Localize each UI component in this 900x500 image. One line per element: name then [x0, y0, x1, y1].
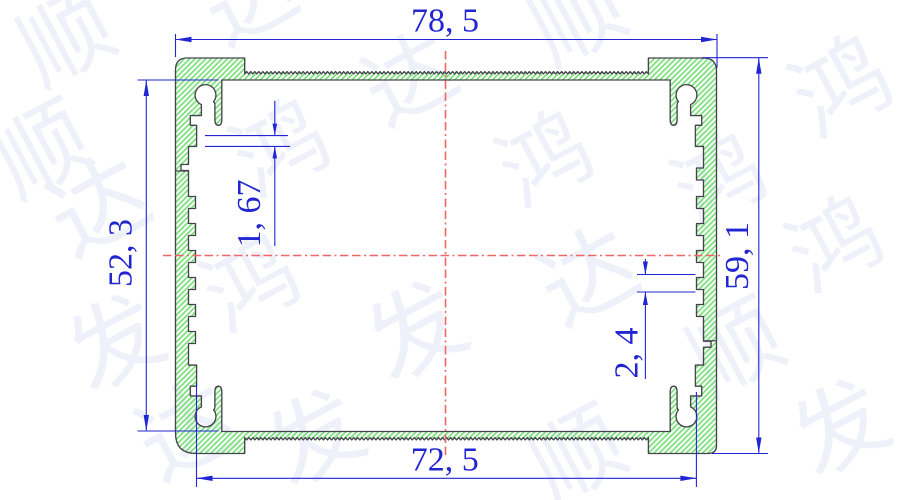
svg-text:1, 67: 1, 67: [231, 180, 268, 248]
svg-text:2, 4: 2, 4: [609, 328, 646, 379]
svg-text:59, 1: 59, 1: [719, 222, 756, 290]
svg-text:78, 5: 78, 5: [411, 3, 479, 40]
svg-text:52, 3: 52, 3: [103, 219, 140, 287]
svg-text:72, 5: 72, 5: [411, 442, 479, 479]
